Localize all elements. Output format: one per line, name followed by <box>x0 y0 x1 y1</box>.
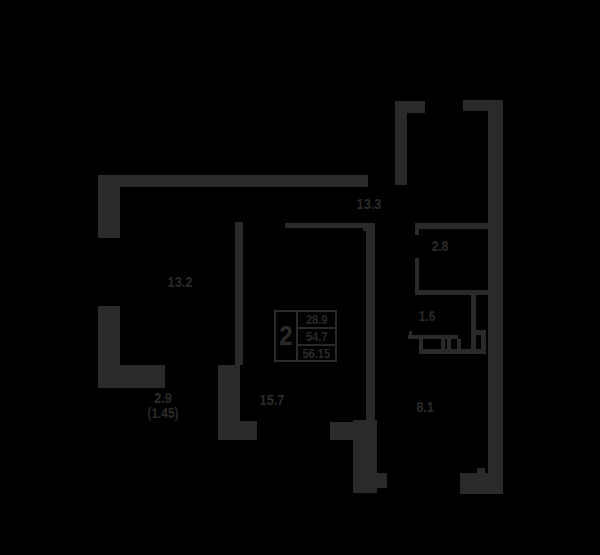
bathroom-counter-tick <box>409 331 412 337</box>
wall-balcony-ledge <box>98 365 165 388</box>
room-label-balcony: 2.9 <box>154 390 172 405</box>
wall-loggia-sill-tooth <box>477 468 485 474</box>
apartment-area-cell: 54.7 <box>298 327 335 344</box>
fixture-stub-top <box>474 330 486 335</box>
bathroom-counter-line <box>408 335 458 339</box>
room-count-value: 2 <box>279 320 292 352</box>
floor-plan-walls <box>0 0 600 555</box>
room-label-wardrobe: 2.8 <box>432 239 449 253</box>
room-label-kitchen: 8.1 <box>416 399 434 414</box>
room-label-bathroom: 1.6 <box>419 309 436 323</box>
fixture-edge-2 <box>441 339 445 350</box>
wall-wardrobe-left <box>415 258 419 290</box>
room-label-living-room: 15.7 <box>260 392 285 407</box>
wall-loggia-sill-right <box>460 473 503 494</box>
room-label-bedroom: 13.2 <box>168 274 193 289</box>
wall-wardrobe-left-stub <box>415 223 419 235</box>
living-area-value: 28.9 <box>306 312 328 327</box>
wall-corridor-top <box>98 175 368 187</box>
wall-loggia-sill-left <box>375 473 387 488</box>
wall-bathroom-bottom <box>419 349 486 354</box>
wall-right-outer <box>488 100 503 494</box>
fixture-edge-3 <box>447 339 451 350</box>
wall-vestibule-left <box>395 101 407 185</box>
wall-living-bottom-left-block <box>218 421 257 440</box>
wall-bedroom-divider <box>235 222 243 365</box>
room-label-balcony-coefficient: (1.45) <box>147 406 178 420</box>
fixture-edge-1 <box>419 339 423 350</box>
room-count-cell: 2 <box>276 312 298 360</box>
total-area-value: 56.15 <box>303 346 331 361</box>
wall-wardrobe-bottom <box>415 290 488 295</box>
wall-bathroom-right <box>471 290 476 353</box>
living-area-cell: 28.9 <box>298 312 335 327</box>
apartment-summary-box: 2 28.9 54.7 56.15 <box>274 310 337 362</box>
wall-loggia-left <box>353 420 377 493</box>
room-label-hallway: 13.3 <box>357 196 382 211</box>
floor-plan: 13.3 13.2 2.8 1.6 15.7 8.1 2.9 (1.45) 2 … <box>0 0 600 555</box>
wall-left-outer-upper <box>98 175 120 238</box>
fixture-edge-4 <box>457 339 461 350</box>
total-area-cell: 56.15 <box>298 344 335 361</box>
apartment-area-value: 54.7 <box>306 329 328 344</box>
wall-living-right <box>366 223 375 422</box>
wall-wardrobe-top <box>415 223 488 229</box>
area-values-column: 28.9 54.7 56.15 <box>298 312 335 360</box>
wall-living-top <box>285 223 373 228</box>
